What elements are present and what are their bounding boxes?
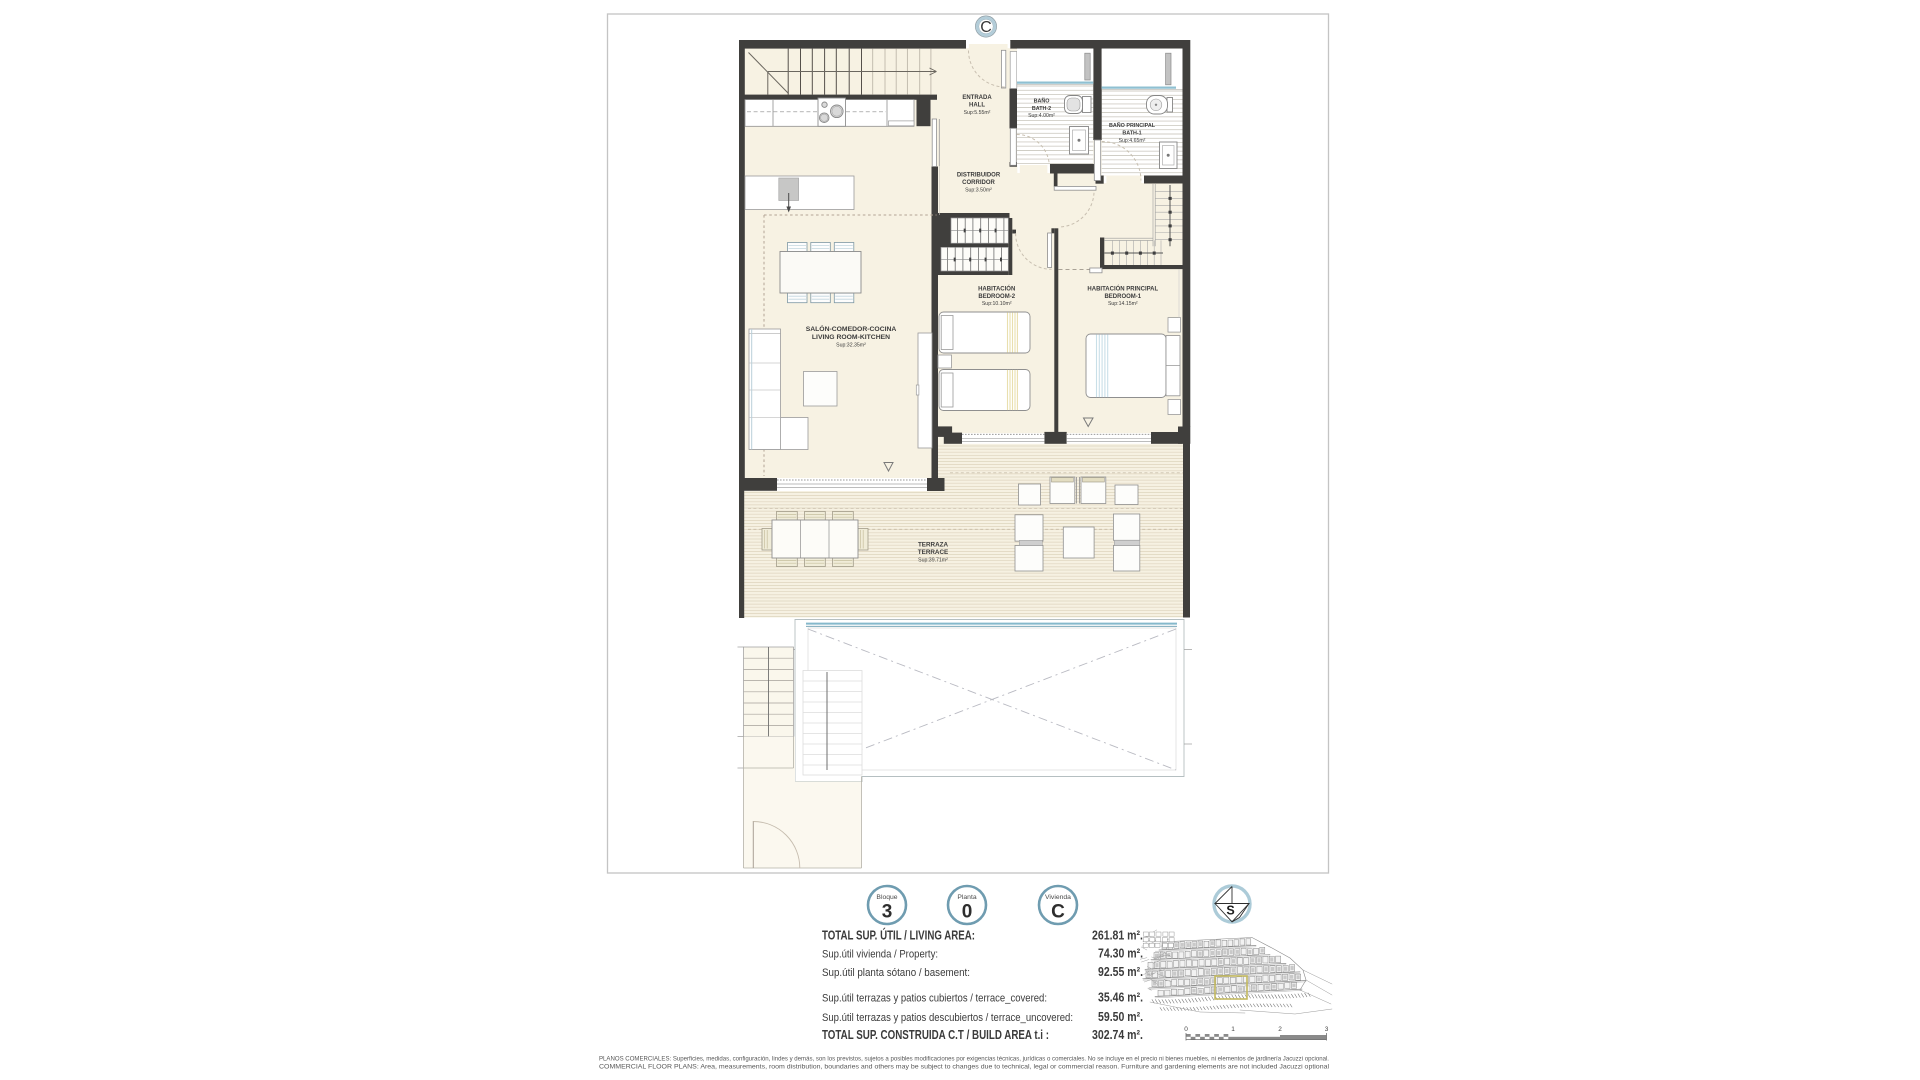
svg-text:BAÑO PRINCIPAL: BAÑO PRINCIPAL [1109,122,1156,129]
svg-text:0: 0 [962,902,973,923]
svg-text:1: 1 [1231,1026,1235,1033]
svg-text:92.55 m².: 92.55 m². [1098,965,1143,979]
svg-text:COMMERCIAL FLOOR PLANS: Area,: COMMERCIAL FLOOR PLANS: Area, measuremen… [599,1065,1329,1071]
svg-text:HABITACIÓN: HABITACIÓN [978,285,1015,293]
svg-text:TERRACE: TERRACE [918,549,948,556]
svg-text:Sup:4.65m²: Sup:4.65m² [1119,138,1146,144]
svg-text:LIVING ROOM-KITCHEN: LIVING ROOM-KITCHEN [812,334,890,341]
svg-text:S: S [1226,904,1234,918]
svg-text:TOTAL SUP. ÚTIL / LIVING AREA:: TOTAL SUP. ÚTIL / LIVING AREA: [822,928,975,943]
svg-text:HALL: HALL [969,103,985,109]
svg-text:TOTAL SUP. CONSTRUIDA C.T / BU: TOTAL SUP. CONSTRUIDA C.T / BUILD AREA t… [822,1028,1049,1042]
svg-text:C: C [1051,902,1065,923]
svg-text:Sup:39.71m²: Sup:39.71m² [918,558,948,564]
svg-text:Sup:14.15m²: Sup:14.15m² [1108,301,1138,307]
svg-text:BEDROOM-2: BEDROOM-2 [978,294,1015,300]
svg-text:BATH-2: BATH-2 [1032,106,1051,112]
svg-text:Bloque: Bloque [876,894,897,901]
svg-text:TERRAZA: TERRAZA [918,542,949,549]
svg-text:Sup.útil vivienda / Property:: Sup.útil vivienda / Property: [822,949,938,961]
svg-text:DISTRIBUIDOR: DISTRIBUIDOR [957,173,1001,179]
svg-text:Sup:10.10m²: Sup:10.10m² [982,301,1012,307]
svg-text:BAÑO: BAÑO [1034,98,1050,105]
svg-text:Planta: Planta [957,894,976,901]
svg-text:3: 3 [1325,1026,1329,1033]
svg-text:HABITACIÓN PRINCIPAL: HABITACIÓN PRINCIPAL [1087,285,1158,293]
svg-text:Sup.útil terrazas y patios cub: Sup.útil terrazas y patios cubiertos / t… [822,993,1047,1005]
svg-text:C: C [980,19,992,36]
svg-text:59.50 m².: 59.50 m². [1098,1010,1143,1024]
svg-text:Vivienda: Vivienda [1045,894,1071,901]
svg-text:PLANOS COMERCIALES: Superficie: PLANOS COMERCIALES: Superficies, medidas… [599,1057,1329,1063]
svg-text:35.46 m².: 35.46 m². [1098,991,1143,1005]
svg-text:Sup:5.55m²: Sup:5.55m² [964,110,991,116]
svg-text:Sup:32.35m²: Sup:32.35m² [836,342,866,348]
svg-text:BATH-1: BATH-1 [1122,131,1141,137]
svg-text:CORRIDOR: CORRIDOR [962,180,995,186]
svg-text:Sup:3.50m²: Sup:3.50m² [965,188,992,194]
svg-text:BEDROOM-1: BEDROOM-1 [1104,294,1141,300]
svg-text:2: 2 [1278,1026,1282,1033]
svg-text:SALÓN-COMEDOR-COCINA: SALÓN-COMEDOR-COCINA [806,324,897,333]
svg-text:Sup:4.00m²: Sup:4.00m² [1028,113,1055,119]
svg-text:0: 0 [1184,1026,1188,1033]
svg-text:302.74 m².: 302.74 m². [1092,1027,1143,1042]
svg-text:74.30 m².: 74.30 m². [1098,947,1143,961]
svg-text:261.81 m².: 261.81 m². [1092,928,1143,943]
svg-text:Sup.útil terrazas y patios des: Sup.útil terrazas y patios descubiertos … [822,1012,1073,1024]
svg-text:ENTRADA: ENTRADA [962,95,992,101]
svg-text:3: 3 [882,902,893,923]
svg-text:Sup.útil planta sótano / basem: Sup.útil planta sótano / basement: [822,967,970,979]
